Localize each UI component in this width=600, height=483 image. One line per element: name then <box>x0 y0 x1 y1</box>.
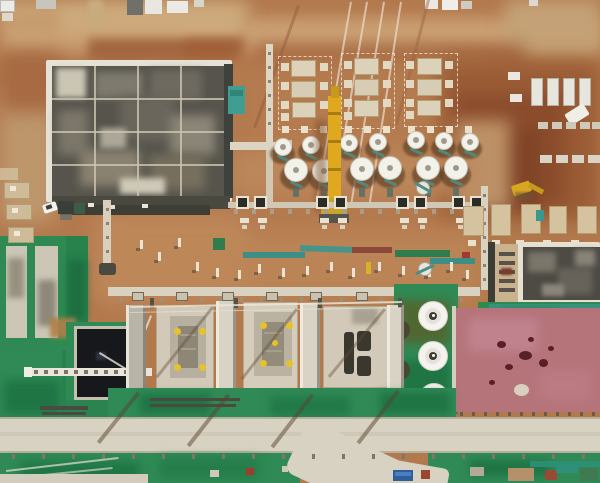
roof-right-edge <box>224 64 233 198</box>
yellow-post <box>366 262 371 274</box>
container-gray <box>36 0 56 9</box>
dark-spot-3 <box>505 364 513 370</box>
red-item <box>421 470 430 479</box>
insulator-disc-lower-hub-3 <box>387 165 393 171</box>
roof-grid-h3 <box>52 164 224 166</box>
busbar-pier-2 <box>270 209 274 214</box>
busbar-pier-7 <box>360 209 364 214</box>
material-green <box>580 468 598 481</box>
road-fence-post-2 <box>72 454 75 459</box>
transformer-1-fin-2 <box>180 348 196 350</box>
transformer-1-marker-1 <box>199 328 206 335</box>
equipment-post-5 <box>238 270 241 279</box>
busbar-fitting-2-1 <box>260 225 265 229</box>
busbar-cubicle-1 <box>254 196 267 209</box>
roof-blob-2 <box>95 72 143 98</box>
roof-blob-6 <box>170 115 215 155</box>
busbar-fitting-0 <box>240 218 249 223</box>
dark-spot-1 <box>519 351 532 360</box>
busbar-cubicle-2 <box>316 196 329 209</box>
pink-fence-post-4 <box>508 412 511 416</box>
trench-v-right-dot-6 <box>483 278 486 281</box>
material-box-2 <box>572 155 584 163</box>
equipment-post-10 <box>352 268 355 277</box>
gray-box-2 <box>566 122 576 129</box>
pedestal-7 <box>427 126 434 133</box>
material-box-3 <box>588 155 600 163</box>
material-teal <box>556 465 578 473</box>
insulator-disc-upper-hub-0 <box>280 144 286 150</box>
annex-step-1 <box>499 261 515 265</box>
pedestal-1 <box>301 126 308 133</box>
pedestal-9 <box>465 126 472 133</box>
dark-canopy-2 <box>60 214 72 220</box>
lattice-dash-3 <box>64 370 68 374</box>
road-fence-post-4 <box>132 454 135 459</box>
foundation-c-small-r-1 <box>445 80 453 88</box>
road-fence-post-12 <box>372 454 375 459</box>
foundation-b1 <box>354 58 379 75</box>
pale-spot <box>514 384 529 396</box>
left-item-white-2 <box>282 466 288 472</box>
firewall-3-edge-l <box>300 303 303 393</box>
roof-grid-h1 <box>52 98 224 100</box>
road-edge-top <box>0 417 600 419</box>
busbar-fitting-2 <box>320 218 329 223</box>
debris-band-2 <box>185 36 245 58</box>
trench-v-dot-1 <box>106 222 109 225</box>
road-fence-post-8 <box>252 454 255 459</box>
roof-blob-1 <box>56 68 86 98</box>
excavator-shadow <box>515 192 533 200</box>
trench-h-post-0 <box>120 297 123 302</box>
pink-fence-post-8 <box>556 412 559 416</box>
pedestal-3 <box>345 126 352 133</box>
disc-support-3 <box>387 188 393 197</box>
west-pad-0 <box>0 168 18 180</box>
foundation-b-small-l-1 <box>344 80 352 88</box>
road-fence-post-19 <box>582 454 585 459</box>
track-vertical-topleft <box>88 0 103 24</box>
road-fence-post-13 <box>402 454 405 459</box>
trench-h-post-2 <box>160 297 163 302</box>
west-mesh-div-1 <box>27 244 35 342</box>
trench-dot-2 <box>268 80 271 83</box>
material-box-0 <box>540 155 552 163</box>
green-crate <box>213 238 225 250</box>
insulator-disc-upper-hub-6 <box>467 139 473 145</box>
west-mesh-left <box>0 236 6 348</box>
storage-tank-glint-1 <box>432 354 435 357</box>
foundation-b3 <box>354 100 379 117</box>
busbar-cubicle-4 <box>396 196 409 209</box>
equipment-post-6 <box>258 264 261 273</box>
dark-bar-1 <box>40 406 88 410</box>
crane-stripe-2 <box>328 140 341 143</box>
transformer-1-marker-2 <box>174 364 181 371</box>
framed-pad-1 <box>176 292 188 301</box>
framed-pad-2 <box>222 292 234 301</box>
crane-stripe-3 <box>328 168 341 171</box>
green-beam <box>395 250 450 257</box>
insulator-disc-upper-hub-2 <box>346 140 352 146</box>
firewall-1-face <box>127 305 143 395</box>
road-fence-post-7 <box>222 454 225 459</box>
insulator-disc-lower-hub-4 <box>425 165 431 171</box>
dark-spot-2 <box>539 359 548 367</box>
roof-blob-9 <box>120 178 165 194</box>
busbar-cubicle-0 <box>236 196 249 209</box>
firewall-4-edge-r <box>401 305 404 391</box>
equipment-post-12 <box>402 266 405 275</box>
pink-fence-post-1 <box>472 412 475 416</box>
lattice-dash-5 <box>84 370 88 374</box>
foundation-a-small-l-2 <box>281 101 289 109</box>
panel-stack-3 <box>579 78 591 106</box>
annex-blob <box>501 268 512 275</box>
pink-fence-post-5 <box>520 412 523 416</box>
busbar-cubicle-3 <box>334 196 347 209</box>
equipment-post-2 <box>178 238 181 247</box>
road-fence-post-9 <box>282 454 285 459</box>
east-pad-2 <box>491 204 511 236</box>
dark-bar-2 <box>42 412 86 415</box>
firewall-1-edge-r <box>143 305 146 395</box>
firewall-2-face <box>217 301 233 393</box>
lattice-dash-1 <box>44 370 48 374</box>
equipment-post-0 <box>140 240 143 249</box>
west-pad-dot-0 <box>10 186 16 191</box>
container-dark <box>127 0 143 15</box>
pedestal-0 <box>282 126 289 133</box>
insulator-disc-upper-hub-3 <box>375 139 381 145</box>
equipment-post-4 <box>216 268 219 277</box>
teal-bit <box>536 210 544 221</box>
busbar-pier-9 <box>396 209 400 214</box>
east-pad-1 <box>463 206 484 236</box>
foundation-a-small-l-1 <box>281 82 289 90</box>
firewall-1-edge-l <box>126 305 129 395</box>
aerial-construction-photo <box>0 0 600 483</box>
equipment-post-3 <box>196 262 199 271</box>
trench-funnel <box>99 263 116 275</box>
road-fence-post-14 <box>432 454 435 459</box>
foundation-a-small-r-1 <box>320 82 328 90</box>
busbar-fitting-4 <box>400 218 409 223</box>
road-fence-post-11 <box>342 454 345 459</box>
transformer-1-marker-3 <box>199 364 206 371</box>
dark-spot-4 <box>528 337 534 342</box>
lattice-dash-0 <box>34 370 38 374</box>
dark-spot-5 <box>548 346 554 351</box>
foundation-c2 <box>417 79 442 96</box>
panel-stack-2 <box>563 78 575 106</box>
annex-step-4 <box>499 288 515 292</box>
transformer-1-marker-0 <box>174 328 181 335</box>
insulator-disc-upper-hub-1 <box>308 142 314 148</box>
foundation-b2 <box>354 79 379 96</box>
road-fence-post-6 <box>192 454 195 459</box>
panel-stack-0 <box>531 78 543 106</box>
road-fence-post-5 <box>162 454 165 459</box>
foundation-c-small-r-2 <box>445 99 453 107</box>
blue-container-top <box>395 472 411 476</box>
annex-step-3 <box>499 279 515 283</box>
trench-dot-3 <box>268 94 271 97</box>
boom-tip <box>24 367 32 377</box>
gray-box-1 <box>552 122 562 129</box>
container-white <box>145 0 162 14</box>
busbar-pier-12 <box>450 209 454 214</box>
transformer-2-marker-3 <box>286 360 293 367</box>
east-pad-5 <box>577 206 597 234</box>
foundation-a-small-l-0 <box>281 63 289 71</box>
busbar-pier-1 <box>252 209 256 214</box>
busbar-cubicle-5 <box>414 196 427 209</box>
insulator-disc-lower-hub-0 <box>293 167 299 173</box>
white-box-2 <box>510 94 522 102</box>
equipment-post-14 <box>450 262 453 271</box>
busbar-pier-11 <box>432 209 436 214</box>
foundation-c-small-l-0 <box>406 61 414 69</box>
busbar-pier-4 <box>306 209 310 214</box>
trench-dot-5 <box>268 122 271 125</box>
pink-fence-post-3 <box>496 412 499 416</box>
pink-fence-post-9 <box>568 412 571 416</box>
dark-spot-6 <box>489 380 495 385</box>
roof-blob-5 <box>120 96 175 141</box>
foundation-c1 <box>417 58 442 75</box>
material-gray <box>470 467 484 476</box>
east-roof-blob-3 <box>542 284 564 296</box>
busbar-pier-8 <box>378 209 382 214</box>
container-row-c <box>461 1 472 9</box>
container-row-b <box>442 0 458 10</box>
foundation-a2 <box>291 81 316 98</box>
foundation-a1 <box>291 60 316 77</box>
lattice-dash-4 <box>74 370 78 374</box>
east-pedestal-0 <box>468 240 476 246</box>
disc-support-2 <box>359 188 365 197</box>
trench-dot-4 <box>268 108 271 111</box>
container-row-d <box>529 0 538 6</box>
busbar-fitting-2-3 <box>340 225 345 229</box>
pedestal-4 <box>364 126 371 133</box>
west-pad-dot-2 <box>14 231 20 236</box>
pink-fence-post-11 <box>592 412 595 416</box>
container-white-2 <box>167 1 188 13</box>
pink-fence-post-7 <box>544 412 547 416</box>
disc-support-0 <box>293 188 299 197</box>
insulator-disc-upper-hub-5 <box>441 138 447 144</box>
wall-speck-1 <box>88 203 94 207</box>
foundation-c3 <box>417 100 441 116</box>
foundation-c-small-l-3 <box>406 111 414 119</box>
equipment-post-1 <box>158 252 161 261</box>
trench-v-right-dot-0 <box>483 194 486 197</box>
equipment-post-11 <box>378 262 381 271</box>
lattice-dash-2 <box>54 370 58 374</box>
pink-fence-post-0 <box>460 412 463 416</box>
west-pad-2 <box>6 204 32 220</box>
insulator-disc-lower-hub-2 <box>359 166 365 172</box>
east-dark-edge <box>488 242 495 304</box>
firewall-3-edge-r <box>317 303 320 393</box>
busbar-pier-0 <box>234 209 238 214</box>
pink-fence-post-10 <box>580 412 583 416</box>
equipment-post-15 <box>466 270 469 279</box>
annex-step-0 <box>499 252 515 256</box>
west-mesh-column-mottle <box>68 260 86 320</box>
water-pond <box>77 329 129 397</box>
west-bay-a-blob <box>8 258 24 298</box>
foundation-c-small-r-0 <box>445 61 453 69</box>
road-fence-post-17 <box>522 454 525 459</box>
busbar-pier-5 <box>324 209 328 214</box>
road-fence-post-1 <box>42 454 45 459</box>
trench-v-dot-2 <box>106 236 109 239</box>
busbar-fitting-2-5 <box>420 225 425 229</box>
foundation-b-small-r-1 <box>383 80 391 88</box>
wall-speck-3 <box>142 204 148 208</box>
foundation-b-small-l-2 <box>344 99 352 107</box>
pedestal-5 <box>383 126 390 133</box>
road-fence-post-16 <box>492 454 495 459</box>
equipment-post-7 <box>282 268 285 277</box>
insulator-disc-upper-hub-4 <box>413 137 419 143</box>
lattice-dash-6 <box>94 370 98 374</box>
firewall-4-face <box>388 305 402 391</box>
teal-container-lid <box>230 90 243 96</box>
material-tan <box>508 468 534 481</box>
white-box-1 <box>508 72 520 80</box>
foundation-c-small-l-2 <box>406 99 414 107</box>
busbar-fitting-2-4 <box>402 225 407 229</box>
busbar-fitting-3 <box>338 218 347 223</box>
busbar-pier-6 <box>342 209 346 214</box>
equipment-post-9 <box>330 262 333 271</box>
bay3-slot-r2 <box>357 356 371 376</box>
firewall-4-edge-l <box>387 305 390 391</box>
storage-tank-glint-0 <box>432 314 435 317</box>
lattice-dash-8 <box>114 370 118 374</box>
equipment-post-8 <box>306 266 309 275</box>
foundation-b-small-l-3 <box>344 112 352 120</box>
material-box-1 <box>556 155 568 163</box>
trench-h-post-9 <box>300 297 303 302</box>
east-pad-4 <box>549 206 567 234</box>
trench-v-dot-0 <box>106 208 109 211</box>
red-crate <box>462 252 470 258</box>
pink-fence-post-2 <box>484 412 487 416</box>
site-hut <box>0 0 15 12</box>
foundation-b-small-r-0 <box>383 61 391 69</box>
foundation-a-small-r-2 <box>320 101 328 109</box>
west-pad-dot-1 <box>12 208 18 213</box>
teal-beam-1 <box>243 252 305 258</box>
left-item-white <box>210 470 219 477</box>
roof-grid-h2 <box>52 131 224 133</box>
pink-blob-2 <box>540 370 590 400</box>
transformer-2-marker-2 <box>260 360 267 367</box>
road-fence-post-0 <box>12 454 15 459</box>
road-fence-post-15 <box>462 454 465 459</box>
gray-box-3 <box>580 122 590 129</box>
east-roof-blob-4 <box>575 250 595 266</box>
crane-stripe-1 <box>328 112 341 115</box>
framed-pad-0 <box>132 292 144 301</box>
trench-dot-0 <box>268 52 271 55</box>
busbar-fitting-2-0 <box>242 225 247 229</box>
foundation-b-small-l-0 <box>344 61 352 69</box>
panel-stack-1 <box>547 78 559 106</box>
insulator-disc-lower-hub-5 <box>453 165 459 171</box>
trench-v-right-dot-4 <box>483 250 486 253</box>
busbar-fitting-1 <box>258 218 267 223</box>
west-pad-1 <box>4 182 30 199</box>
busbar-pier-3 <box>288 209 292 214</box>
framed-pad-5 <box>356 292 368 301</box>
storage-box <box>194 0 204 7</box>
dark-spot-0 <box>497 341 506 348</box>
foundation-a-small-r-0 <box>320 63 328 71</box>
gray-box-4 <box>592 122 600 129</box>
foundation-b-small-r-2 <box>383 99 391 107</box>
framed-pad-3 <box>266 292 278 301</box>
trench-v-right-dot-5 <box>483 264 486 267</box>
bay-pole-1 <box>234 298 238 308</box>
gray-box-0 <box>538 122 548 129</box>
crane-boom-tip <box>331 86 339 98</box>
road-fence-post-10 <box>312 454 315 459</box>
trench-h-post-17 <box>460 297 463 302</box>
west-pad-3 <box>8 227 34 243</box>
site-hut-2 <box>2 13 13 21</box>
busbar-fitting-2-2 <box>322 225 327 229</box>
road-fence-post-18 <box>552 454 555 459</box>
lattice-dash-7 <box>104 370 108 374</box>
trench-h-post-4 <box>200 297 203 302</box>
busbar-pier-10 <box>414 209 418 214</box>
foundation-c-small-l-1 <box>406 80 414 88</box>
east-roof-blob-1 <box>528 252 556 272</box>
foundation-a3 <box>292 102 316 118</box>
trench-v-dot-3 <box>106 250 109 253</box>
firewall-3-face <box>301 303 317 393</box>
busbar-fitting-5 <box>418 218 427 223</box>
dark-canopy <box>58 201 74 214</box>
transformer-2-fin-2 <box>264 350 282 352</box>
left-item-red <box>246 468 254 475</box>
pink-fence-post-6 <box>532 412 535 416</box>
trench-v-right-dot-3 <box>483 236 486 239</box>
trench-dot-1 <box>268 66 271 69</box>
firewall-2-edge-r <box>233 301 236 393</box>
transformer-2-marker-0 <box>260 322 267 329</box>
foundation-a-small-l-3 <box>281 113 289 121</box>
firewall-2-edge-l <box>216 301 219 393</box>
red-beam <box>352 247 392 253</box>
